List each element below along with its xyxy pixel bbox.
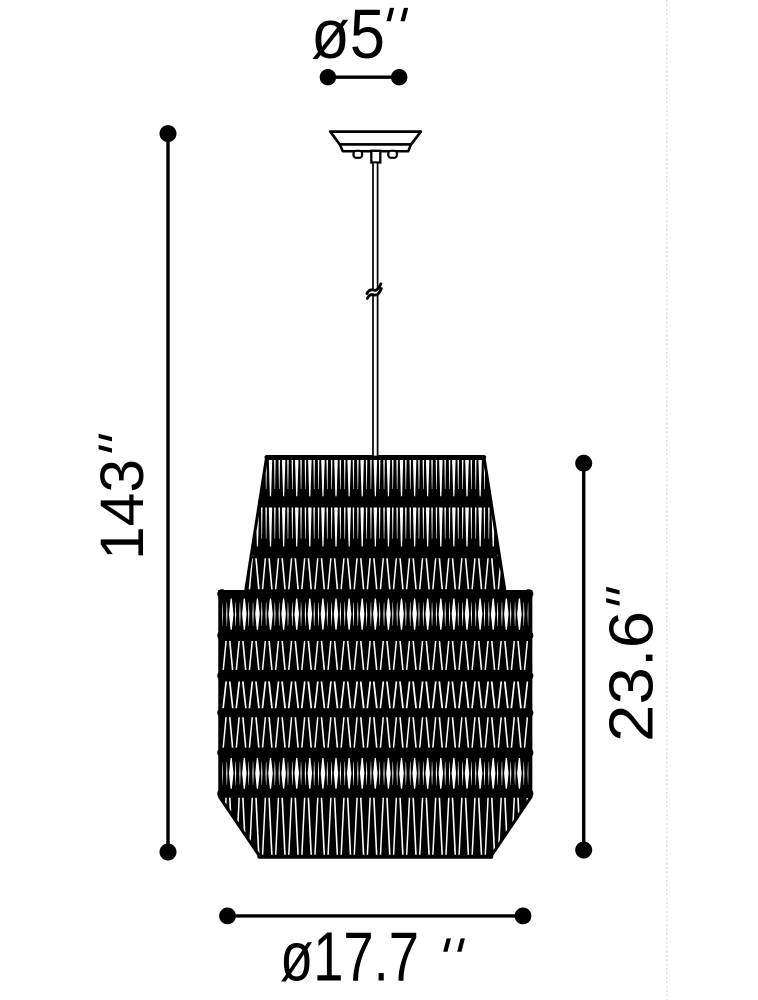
svg-text:23.6: 23.6 bbox=[597, 611, 666, 742]
svg-text:143: 143 bbox=[88, 459, 156, 560]
svg-text:ø17.7: ø17.7 bbox=[280, 918, 419, 996]
svg-text:ø5: ø5 bbox=[311, 0, 385, 73]
